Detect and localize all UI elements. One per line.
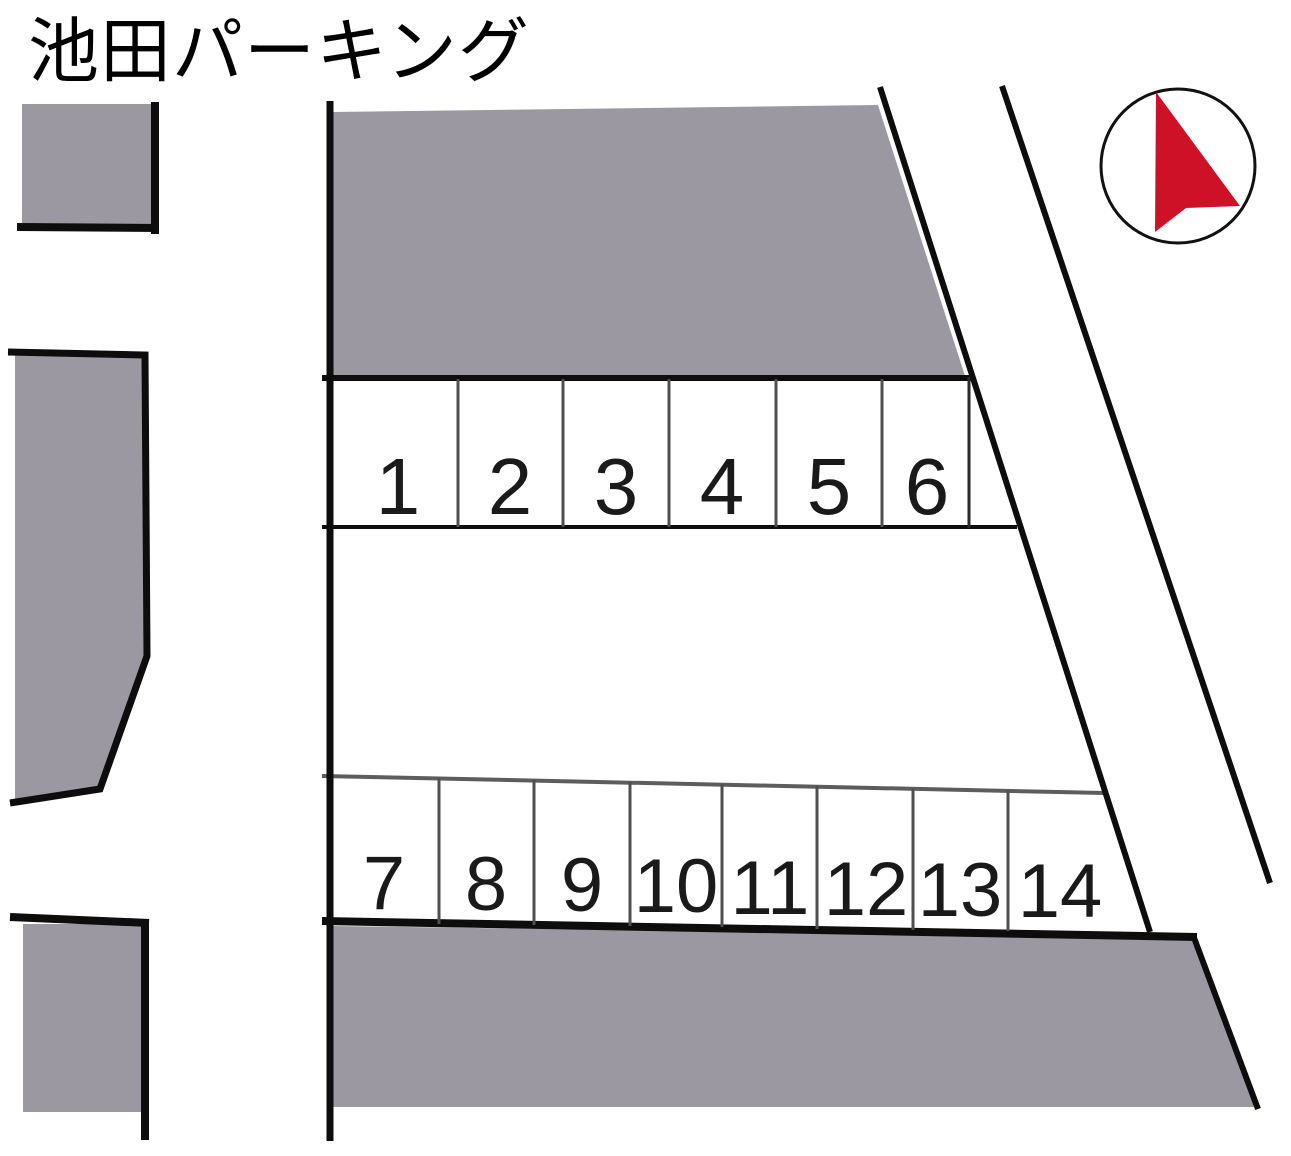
space-3-label: 3 — [594, 442, 639, 531]
space-9-label: 9 — [561, 843, 603, 928]
building-block-top-left-bottom-border — [17, 227, 159, 228]
map-title: 池田パーキング — [28, 10, 530, 93]
upper-building-area — [333, 105, 965, 376]
space-8-label: 8 — [465, 842, 507, 927]
space-7-label: 7 — [363, 841, 405, 926]
compass-icon — [1101, 89, 1255, 243]
space-11-label: 11 — [731, 846, 810, 931]
space-14-label: 14 — [1018, 849, 1103, 934]
lower-building-area — [333, 926, 1257, 1107]
space-10-label: 10 — [634, 844, 719, 929]
space-4-label: 4 — [700, 442, 745, 531]
space-5-label: 5 — [807, 442, 852, 531]
parking-map-page: 1 2 3 4 5 6 7 8 9 10 11 — [0, 0, 1291, 1156]
space-12-label: 12 — [824, 847, 909, 932]
building-block-bottom-left — [23, 924, 144, 1112]
parking-map: 1 2 3 4 5 6 7 8 9 10 11 — [0, 0, 1291, 1156]
space-1-label: 1 — [376, 442, 421, 531]
building-block-top-left — [22, 104, 155, 228]
space-6-label: 6 — [905, 442, 950, 531]
space-13-label: 13 — [918, 848, 1003, 933]
space-2-label: 2 — [488, 442, 533, 531]
